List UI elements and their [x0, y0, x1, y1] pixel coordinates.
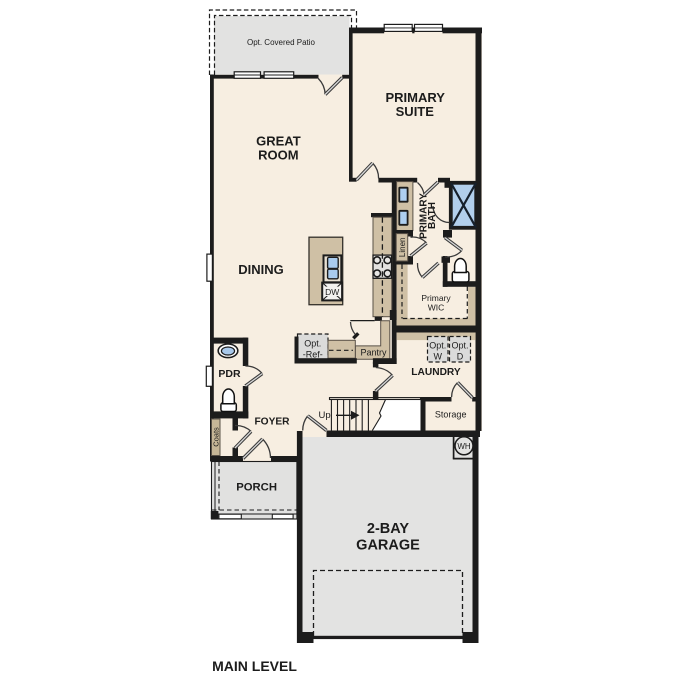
svg-text:Up: Up — [319, 410, 331, 421]
svg-text:GARAGE: GARAGE — [356, 538, 420, 554]
svg-text:WIC: WIC — [428, 303, 445, 313]
svg-text:LAUNDRY: LAUNDRY — [411, 367, 461, 378]
svg-text:ROOM: ROOM — [258, 147, 298, 162]
svg-text:DW: DW — [325, 287, 339, 297]
svg-text:Opt.: Opt. — [304, 339, 321, 349]
svg-text:Pantry: Pantry — [360, 348, 387, 358]
svg-text:Opt. Covered Patio: Opt. Covered Patio — [247, 38, 316, 47]
svg-text:Opt.: Opt. — [451, 341, 468, 351]
svg-text:MAIN LEVEL: MAIN LEVEL — [212, 658, 297, 674]
svg-text:PORCH: PORCH — [236, 482, 277, 494]
svg-text:Primary: Primary — [421, 293, 451, 303]
svg-text:BATH: BATH — [427, 202, 438, 229]
svg-text:Linen: Linen — [398, 238, 407, 258]
svg-text:FOYER: FOYER — [254, 417, 290, 428]
svg-text:Coats: Coats — [211, 427, 220, 447]
svg-text:SUITE: SUITE — [396, 104, 435, 119]
svg-text:DINING: DINING — [238, 262, 284, 277]
svg-text:D: D — [457, 352, 464, 362]
svg-text:2-BAY: 2-BAY — [367, 521, 410, 537]
svg-text:GREAT: GREAT — [256, 133, 301, 148]
svg-text:PDR: PDR — [218, 368, 241, 380]
svg-text:-Ref-: -Ref- — [303, 350, 323, 360]
svg-text:W: W — [433, 352, 442, 362]
svg-text:Storage: Storage — [435, 410, 467, 420]
svg-text:Opt.: Opt. — [429, 341, 446, 351]
svg-text:WH: WH — [457, 442, 471, 451]
svg-text:PRIMARY: PRIMARY — [385, 90, 445, 105]
